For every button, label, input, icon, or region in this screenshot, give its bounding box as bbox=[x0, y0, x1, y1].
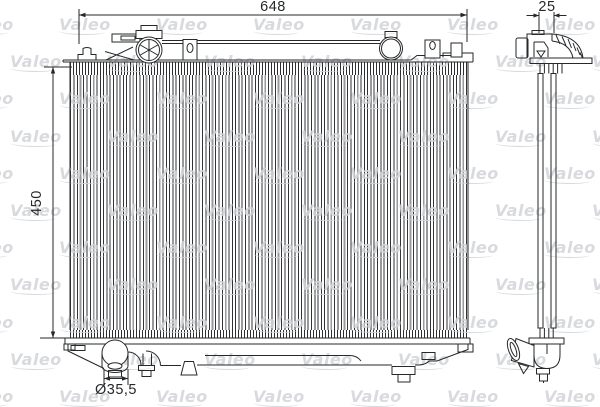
dim-label-outlet-diameter: Ø35,5 bbox=[86, 383, 146, 398]
radiator-technical-drawing: ValeoValeoValeoValeoValeoValeoValeoValeo… bbox=[0, 0, 600, 400]
side-bottom-flange bbox=[529, 338, 564, 344]
foot-left bbox=[64, 344, 75, 350]
outlet-pipe bbox=[102, 340, 128, 377]
side-drain-plug bbox=[537, 369, 550, 384]
side-top-flange bbox=[530, 58, 592, 64]
side-lower-tank bbox=[534, 344, 560, 369]
side-hose-elbow bbox=[552, 34, 583, 58]
filler-cap bbox=[136, 37, 162, 63]
foot-middle bbox=[181, 362, 197, 376]
core-edges bbox=[70, 62, 468, 330]
dim-label-depth: 25 bbox=[531, 0, 563, 15]
fan-ring bbox=[380, 32, 403, 61]
drawing-linework bbox=[0, 0, 600, 400]
dim-side-depth bbox=[527, 12, 567, 33]
side-left-plate bbox=[516, 38, 528, 58]
dim-label-width: 648 bbox=[246, 0, 300, 15]
dim-label-height: 450 bbox=[30, 181, 46, 225]
bottom-peg bbox=[392, 367, 415, 383]
front-view-bottom bbox=[64, 338, 473, 382]
top-tab-right bbox=[451, 43, 462, 57]
side-core-columns bbox=[538, 74, 556, 329]
top-tab-left bbox=[78, 48, 96, 61]
side-view bbox=[505, 31, 592, 384]
beam-bracket bbox=[183, 40, 197, 61]
front-view-top bbox=[63, 26, 473, 64]
